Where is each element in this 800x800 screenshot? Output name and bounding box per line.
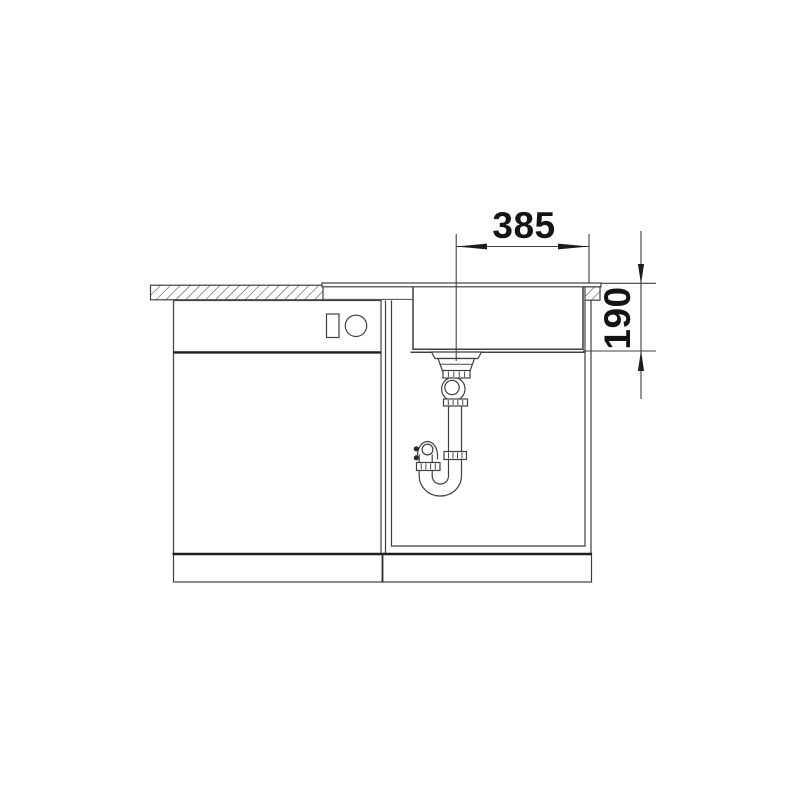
cabinet-interior (392, 301, 586, 547)
base-cabinet-right (386, 301, 592, 555)
arrow-left-icon (456, 244, 487, 250)
trap-u-bend (419, 455, 461, 497)
drain-trap-assembly (414, 352, 482, 496)
arrow-right-icon (558, 244, 589, 250)
technical-drawing: 385 190 (0, 0, 800, 800)
coupling-ring-4 (417, 463, 441, 471)
arrow-up-icon (638, 351, 644, 372)
coupling-ring-2 (444, 399, 468, 406)
plinth (173, 554, 593, 582)
base-cabinet-left (174, 301, 382, 555)
elbow-ball-joint (442, 377, 465, 400)
clamp-screw (414, 446, 419, 451)
fitting-symbols (327, 314, 367, 338)
worktop-section-left (151, 285, 324, 300)
clamp-screw (414, 455, 419, 460)
diagram-canvas: 385 190 (0, 0, 800, 800)
tailpipe (449, 399, 462, 476)
fitting-circle-symbol (345, 315, 366, 336)
dimension-depth: 190 (583, 231, 656, 399)
dimension-depth-label: 190 (597, 286, 638, 349)
fitting-rect-symbol (327, 314, 340, 338)
coupling-ring-3 (444, 452, 467, 460)
arrow-down-icon (638, 264, 644, 284)
trap-outlet-bend (414, 442, 438, 461)
coupling-ring-1 (443, 371, 470, 379)
dimension-width-label: 385 (492, 205, 555, 246)
sink-rim (322, 283, 601, 299)
sink-bowl (411, 287, 586, 352)
